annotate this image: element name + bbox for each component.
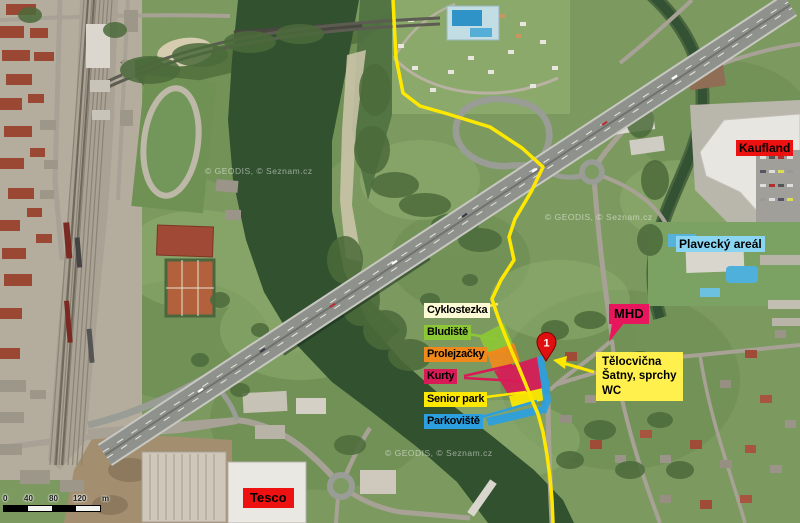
marker-number: 1 [543, 338, 549, 350]
camping-area [392, 0, 570, 114]
annotated-map: 1 © GEODIS, © Seznam.cz © GEODIS, © Sezn… [0, 0, 800, 523]
scale-tick: 80 [49, 494, 58, 503]
scale-tick: 0 [3, 494, 7, 503]
poi-label-plavecky-areal: Plavecký areál [676, 236, 765, 252]
poi-label-mhd: MHD [609, 304, 649, 324]
sports-hall [156, 225, 213, 257]
legend-label-senior-park: Senior park [424, 392, 487, 407]
watermark: © GEODIS, © Seznam.cz [385, 448, 493, 458]
scale-tick: 40 [24, 494, 33, 503]
scale-bar: 0 40 80 120 m [3, 494, 113, 516]
roundabout-north [582, 162, 602, 182]
tennis-courts [166, 260, 214, 316]
callout-line-1: Tělocvična [602, 355, 677, 369]
scale-unit: m [102, 494, 109, 503]
legend-label-kurty: Kurty [424, 369, 457, 384]
stadium [131, 75, 216, 214]
roundabout-south [330, 475, 352, 497]
callout-line-2: Šatny, sprchy [602, 369, 677, 383]
legend-label-prolejzacky: Prolejzačky [424, 347, 487, 362]
scale-bar-segments [3, 505, 101, 512]
legend-label-bludiste: Bludiště [424, 325, 471, 340]
pool [452, 10, 482, 26]
poi-label-tesco: Tesco [243, 488, 294, 508]
satellite-map-canvas[interactable]: 1 [0, 0, 800, 523]
watermark: © GEODIS, © Seznam.cz [545, 212, 653, 222]
callout-telocvicna: Tělocvična Šatny, sprchy WC [596, 352, 683, 401]
watermark: © GEODIS, © Seznam.cz [205, 166, 313, 176]
callout-line-3: WC [602, 384, 677, 398]
legend-label-parkoviste: Parkoviště [424, 414, 483, 429]
poi-label-kaufland: Kaufland [736, 140, 793, 156]
scale-tick: 120 [73, 494, 86, 503]
legend-label-cyklostezka: Cyklostezka [424, 303, 490, 318]
